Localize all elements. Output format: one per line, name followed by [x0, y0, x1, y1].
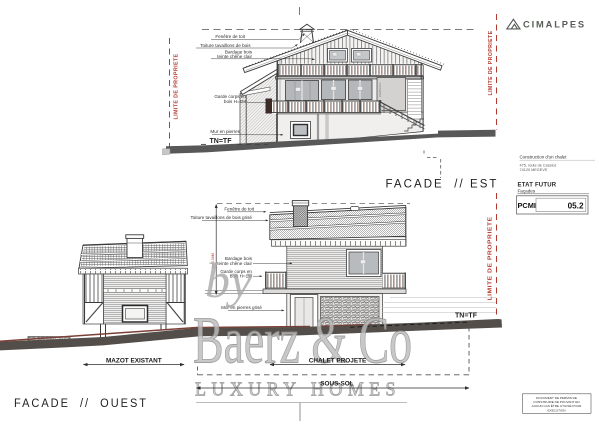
svg-text:Construction d'un chalet: Construction d'un chalet — [520, 155, 568, 160]
svg-text:Façades: Façades — [518, 188, 536, 193]
svg-text:LIMITE DE PROPRIETE: LIMITE DE PROPRIETE — [174, 54, 180, 120]
svg-text:by: by — [205, 252, 253, 308]
svg-text:PCMI: PCMI — [518, 201, 536, 210]
svg-text:SOUS-SOL: SOUS-SOL — [320, 381, 353, 388]
svg-text:MAZOT EXISTANT: MAZOT EXISTANT — [106, 357, 162, 364]
svg-text:Fenêtre de toit: Fenêtre de toit — [215, 34, 245, 39]
svg-text:teinte chêne clair: teinte chêne clair — [217, 54, 252, 59]
svg-text:CIMALPES: CIMALPES — [523, 19, 586, 30]
svg-text:Toiture tavaillons de bois: Toiture tavaillons de bois — [200, 43, 251, 48]
svg-text:Baerz & Co: Baerz & Co — [193, 304, 412, 378]
svg-text:PERGOLA: PERGOLA — [378, 82, 382, 97]
svg-text:FACADE // EST: FACADE // EST — [386, 177, 499, 191]
svg-text:05.2: 05.2 — [568, 202, 584, 211]
svg-text:Toiture tavaillons de bois gri: Toiture tavaillons de bois grisé — [190, 215, 252, 220]
svg-text:Fenêtre de toit: Fenêtre de toit — [224, 207, 254, 212]
svg-text:CHALET PROJETE: CHALET PROJETE — [309, 357, 367, 364]
svg-text:74120 MEGEVE: 74120 MEGEVE — [520, 168, 548, 172]
svg-text:Mur en pierres: Mur en pierres — [210, 129, 240, 134]
svg-text:LIMITE DE PROPRIETE: LIMITE DE PROPRIETE — [488, 217, 494, 301]
svg-text:bois H=1M: bois H=1M — [224, 99, 246, 104]
svg-text:FACADE // OUEST: FACADE // OUEST — [14, 396, 148, 410]
svg-text:TN=TF: TN=TF — [210, 138, 233, 145]
svg-text:EXECUTION: EXECUTION — [547, 408, 565, 412]
svg-text:475, route de Cassioz: 475, route de Cassioz — [520, 164, 557, 168]
svg-text:LIMITE DE PROPRIETE: LIMITE DE PROPRIETE — [488, 31, 494, 96]
svg-text:LUXURY HOMES: LUXURY HOMES — [195, 379, 401, 401]
svg-text:TN=TF: TN=TF — [455, 313, 478, 320]
